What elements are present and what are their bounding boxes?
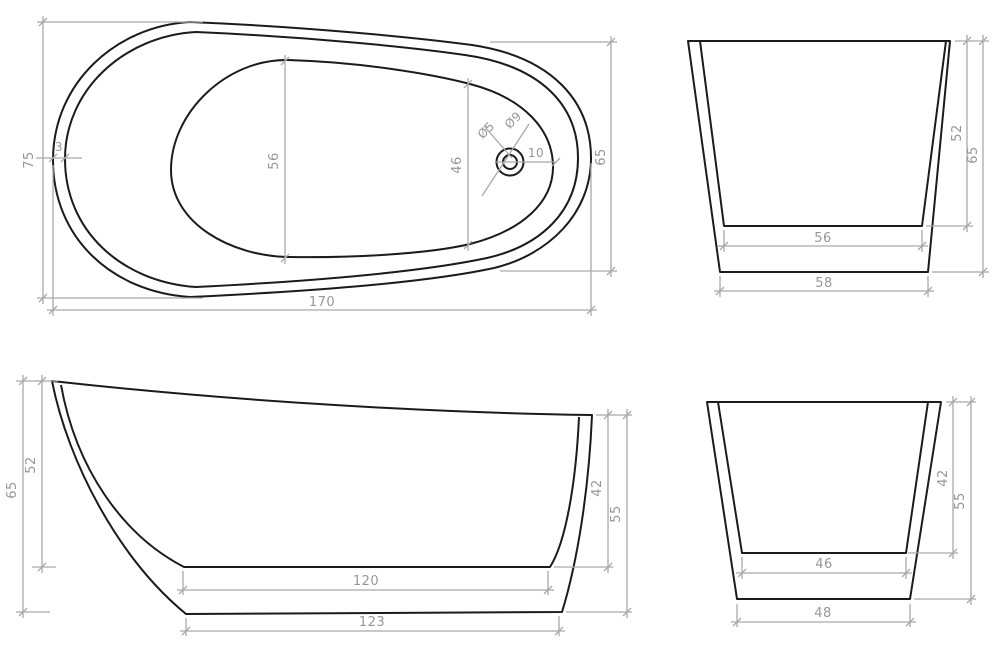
foot-end-basin-outline xyxy=(718,402,928,553)
technical-drawing-page: 75 3 56 46 65 170 Ø5 Ø9 10 56 58 52 65 xyxy=(0,0,997,650)
foot-end-base-width-label: 48 xyxy=(814,606,832,621)
head-end-basin-outline xyxy=(700,41,946,226)
head-end-dimension-labels: 56 58 52 65 xyxy=(814,124,981,291)
side-outer-outline xyxy=(52,381,592,614)
plan-view: 75 3 56 46 65 170 Ø5 Ø9 10 xyxy=(22,16,617,316)
foot-end-dimension-graphics xyxy=(731,396,976,627)
plan-outlines xyxy=(53,22,591,297)
head-end-basin-bottom-width-label: 56 xyxy=(814,231,832,246)
head-end-base-width-label: 58 xyxy=(815,276,833,291)
side-basin-depth-front-label: 42 xyxy=(590,479,605,497)
plan-rim-inner-outline xyxy=(65,32,578,287)
head-end-view: 56 58 52 65 xyxy=(688,35,989,297)
drawing-canvas: 75 3 56 46 65 170 Ø5 Ø9 10 56 58 52 65 xyxy=(0,0,997,650)
side-overall-height-back-label: 65 xyxy=(5,481,20,499)
side-outlines xyxy=(52,381,592,614)
side-view: 65 52 42 55 120 123 xyxy=(5,375,632,636)
plan-basin-width-foot-label: 46 xyxy=(450,156,465,174)
side-basin-floor-length-label: 120 xyxy=(353,574,379,589)
plan-outer-outline xyxy=(53,22,591,297)
foot-end-dimension-ticks xyxy=(733,398,975,626)
plan-basin-outline xyxy=(171,60,553,257)
plan-extension-lines xyxy=(37,22,617,316)
foot-end-basin-bottom-width-label: 46 xyxy=(815,557,833,572)
plan-width-right-label: 65 xyxy=(594,148,609,166)
plan-wall-thickness-label: 3 xyxy=(55,140,63,154)
side-base-length-label: 123 xyxy=(359,615,385,630)
foot-end-extension-lines xyxy=(737,402,976,627)
plan-drain-outer-dia-label: Ø9 xyxy=(502,109,525,132)
head-end-basin-depth-label: 52 xyxy=(950,124,965,142)
foot-end-dimension-lines xyxy=(731,396,971,622)
plan-drain-offset-label: 10 xyxy=(528,146,544,160)
plan-basin-width-mid-label: 56 xyxy=(267,152,282,170)
foot-end-view: 46 48 42 55 xyxy=(707,396,976,627)
plan-width-left-label: 75 xyxy=(22,151,37,169)
head-end-extension-lines xyxy=(720,41,989,297)
foot-end-basin-depth-label: 42 xyxy=(936,469,951,487)
head-end-overall-height-label: 65 xyxy=(966,146,981,164)
side-extension-lines xyxy=(16,381,632,636)
side-overall-height-front-label: 55 xyxy=(609,505,624,523)
side-basin-depth-back-label: 52 xyxy=(24,456,39,474)
plan-length-label: 170 xyxy=(309,295,335,310)
foot-end-overall-height-label: 55 xyxy=(953,492,968,510)
side-dimension-ticks xyxy=(19,377,631,635)
